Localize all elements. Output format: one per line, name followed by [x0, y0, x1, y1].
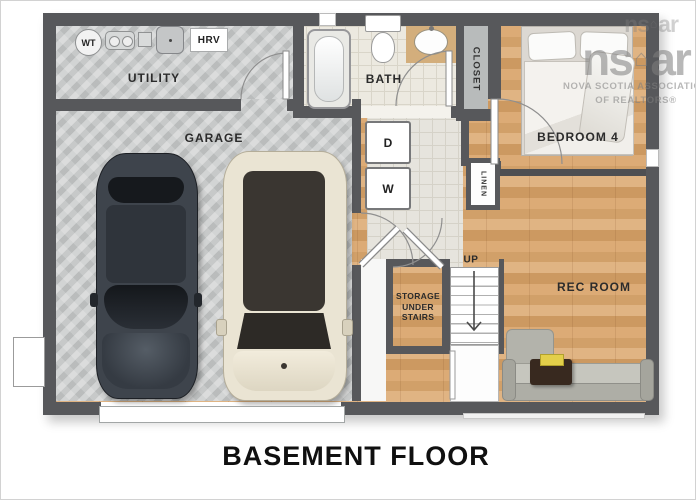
bath-label: BATH	[366, 72, 402, 86]
floorplan: WT HRV D W LINEN	[43, 13, 659, 415]
window-well	[13, 337, 45, 387]
door-arc-utility	[241, 53, 287, 99]
door-leaf-bedroom	[491, 99, 498, 164]
plan-title: BASEMENT FLOOR	[222, 441, 490, 472]
door-leaf-utility	[283, 51, 289, 99]
floorplan-image: WT HRV D W LINEN	[0, 0, 696, 500]
bedroom4-label: BEDROOM 4	[537, 130, 619, 144]
stairs-up-label: UP	[464, 255, 479, 266]
stairs-direction-arrow	[467, 271, 481, 330]
garage-label: GARAGE	[185, 131, 244, 145]
nsar-corner-ar: ar	[658, 15, 678, 33]
utility-label: UTILITY	[128, 71, 180, 85]
closet-label: CLOSET	[471, 47, 482, 92]
door-arc-bath	[396, 51, 451, 106]
door-leaf-hall	[361, 228, 398, 265]
linen-label: LINEN	[480, 171, 487, 197]
door-leaf-landing	[450, 351, 455, 399]
storage-label: STORAGE UNDER STAIRS	[390, 291, 446, 323]
rec-room-label: REC ROOM	[557, 280, 631, 294]
door-leaf-bath	[446, 51, 452, 106]
